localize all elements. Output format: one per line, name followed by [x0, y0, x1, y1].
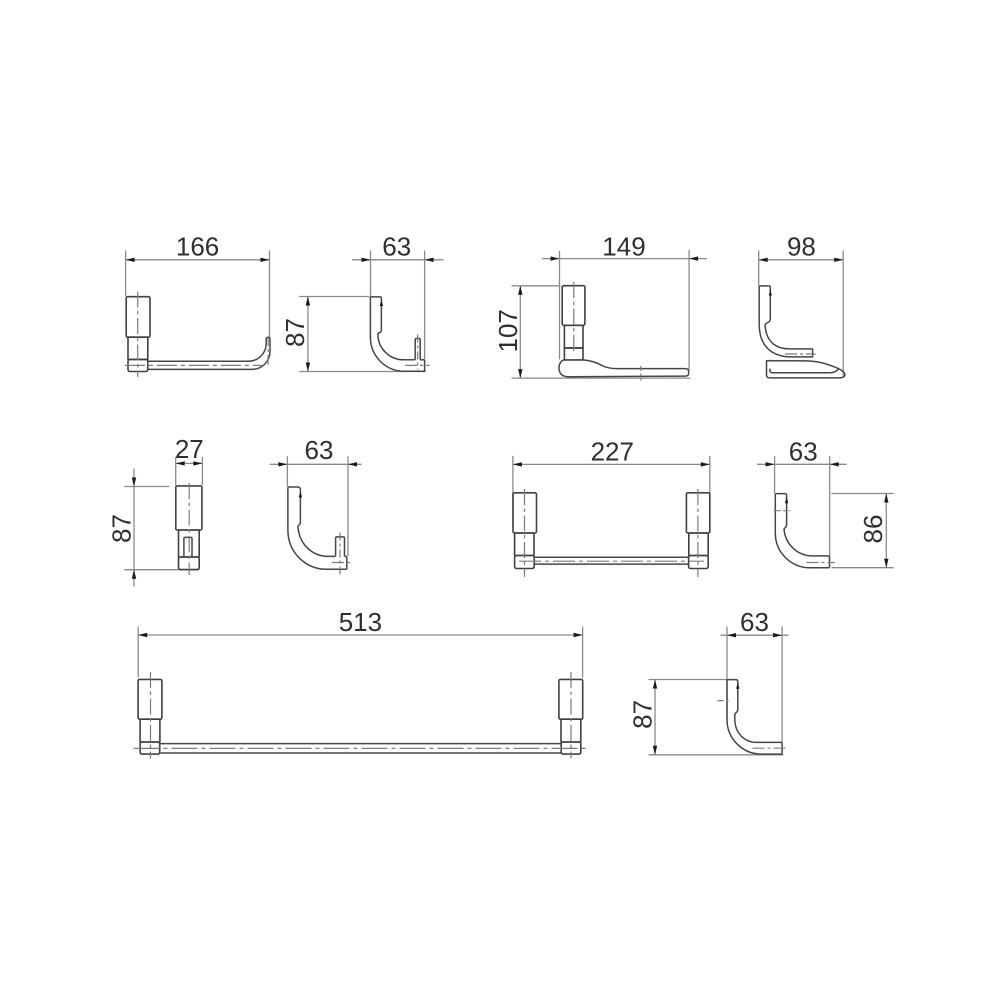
- svg-text:86: 86: [858, 515, 888, 544]
- svg-text:63: 63: [382, 232, 411, 262]
- svg-text:166: 166: [176, 232, 219, 262]
- svg-text:27: 27: [175, 434, 204, 464]
- svg-text:227: 227: [591, 437, 634, 467]
- svg-text:63: 63: [305, 435, 334, 465]
- svg-text:98: 98: [787, 231, 816, 261]
- svg-text:63: 63: [789, 437, 818, 467]
- svg-text:87: 87: [280, 318, 310, 347]
- svg-text:107: 107: [493, 309, 523, 352]
- svg-text:63: 63: [740, 607, 769, 637]
- svg-text:149: 149: [602, 232, 645, 262]
- svg-text:87: 87: [628, 700, 658, 729]
- svg-text:87: 87: [107, 514, 137, 543]
- svg-text:513: 513: [339, 607, 382, 637]
